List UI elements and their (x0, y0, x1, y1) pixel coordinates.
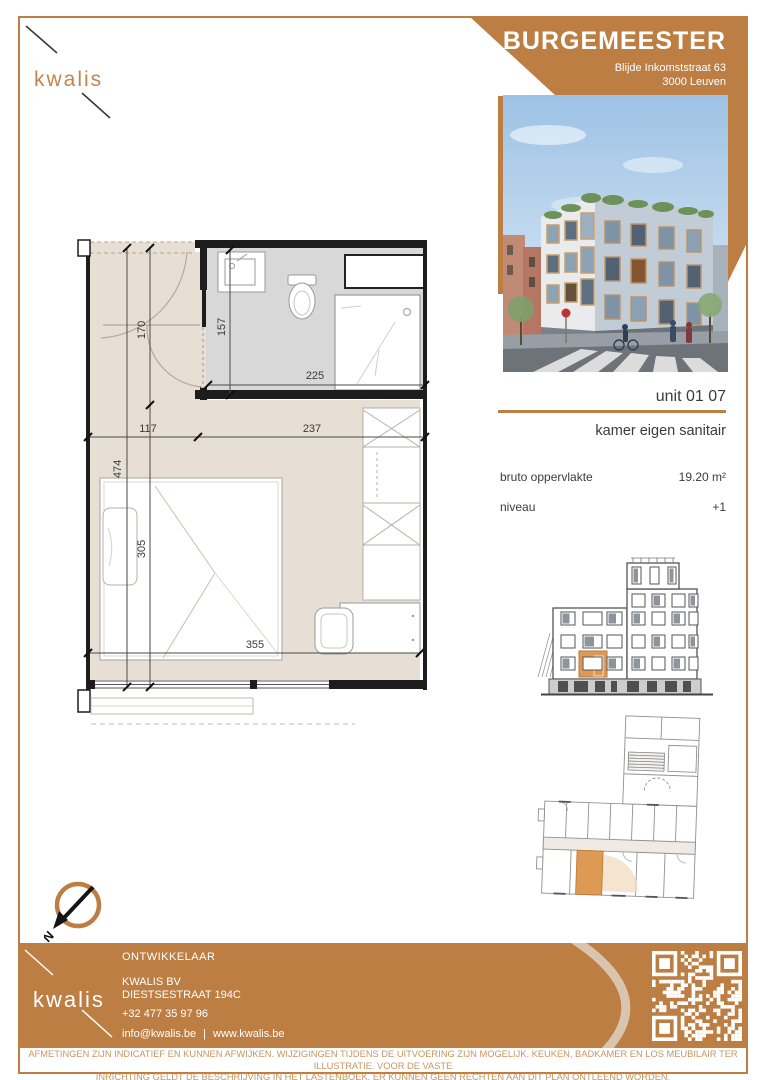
shaft (345, 255, 425, 288)
dim-total-width: 355 (246, 639, 264, 651)
developer-street: DIESTSESTRAAT 194C (122, 989, 241, 1002)
stairs (628, 752, 665, 771)
window (95, 680, 250, 689)
dim-entry-width: 117 (139, 423, 157, 435)
logo-text: kwalis (34, 68, 103, 91)
entry-threshold (90, 242, 195, 253)
footer: kwalis ONTWIKKELAAR KWALIS BV DIESTSESTR… (19, 943, 747, 1048)
level-row: niveau +1 (500, 500, 726, 514)
logo-diagonal-line (82, 93, 110, 118)
level-value: +1 (712, 500, 726, 514)
wall-stub (78, 240, 90, 256)
dim-bath-height: 157 (216, 318, 228, 336)
hatching (538, 633, 553, 677)
developer-phone: +32 477 35 97 96 (122, 1008, 208, 1020)
unit-number: unit 01 07 (656, 388, 726, 406)
link-separator: | (203, 1028, 206, 1040)
area-row: bruto oppervlakte 19.20 m² (500, 470, 726, 484)
pillow (103, 508, 137, 585)
project-title: BURGEMEESTER (503, 27, 726, 56)
logo-diagonal-line (25, 950, 53, 975)
building-photo (503, 95, 728, 372)
project-address-city: 3000 Leuven (503, 75, 726, 89)
dim-bath-width: 225 (306, 370, 324, 382)
tree (698, 293, 722, 317)
dim-bed-zone-height: 305 (136, 540, 148, 558)
roof-railing (631, 558, 675, 563)
dim-entry-height: 170 (136, 321, 148, 339)
accent-rule (498, 410, 726, 413)
level-label: niveau (500, 500, 535, 514)
highlighted-unit-keyplan (576, 850, 604, 895)
developer-email-link[interactable]: info@kwalis.be (122, 1028, 196, 1040)
logo-diagonal-line (82, 1010, 112, 1037)
footer-logo-text: kwalis (33, 987, 105, 1012)
sink (218, 252, 265, 292)
logo-diagonal-line (26, 26, 57, 53)
area-label: bruto oppervlakte (500, 470, 593, 484)
developer-company: KWALIS BV (122, 976, 241, 989)
floor-key-plan (528, 712, 728, 940)
developer-links: info@kwalis.be|www.kwalis.be (122, 1028, 285, 1040)
tree (508, 296, 534, 322)
disclaimer-line-2: INRICHTING GELDT DE BESCHRIJVING IN HET … (19, 1072, 747, 1080)
chair (315, 608, 353, 654)
toilet (288, 275, 316, 319)
north-arrow (62, 887, 93, 920)
dim-room-width-right: 237 (303, 423, 321, 435)
developer-website-link[interactable]: www.kwalis.be (213, 1028, 285, 1040)
building-elevation-drawing (535, 551, 745, 701)
project-header: BURGEMEESTER Blijde Inkomststraat 63 300… (503, 27, 726, 89)
elevation-ground-floor (549, 679, 701, 694)
wall-stub (78, 690, 90, 712)
footer-kwalis-logo: kwalis (19, 946, 129, 1046)
brochure-page: kwalis BURGEMEESTER Blijde Inkomststraat… (0, 0, 764, 1080)
unit-type: kamer eigen sanitair (595, 423, 726, 439)
area-value: 19.20 m² (679, 470, 726, 484)
dim-total-height: 474 (112, 460, 124, 478)
developer-role-label: ONTWIKKELAAR (122, 951, 215, 963)
shower (335, 295, 420, 390)
disclaimer: AFMETINGEN ZIJN INDICATIEF EN KUNNEN AFW… (19, 1049, 747, 1080)
north-compass: N (44, 873, 120, 949)
project-address-street: Blijde Inkomststraat 63 (503, 61, 726, 75)
qr-code (652, 951, 742, 1041)
traffic-sign (562, 309, 571, 318)
kwalis-logo: kwalis (20, 20, 130, 120)
disclaimer-line-1: AFMETINGEN ZIJN INDICATIEF EN KUNNEN AFW… (19, 1049, 747, 1072)
window (257, 680, 329, 689)
floor-plan: 474 170 305 157 225 117 237 355 (75, 228, 435, 738)
